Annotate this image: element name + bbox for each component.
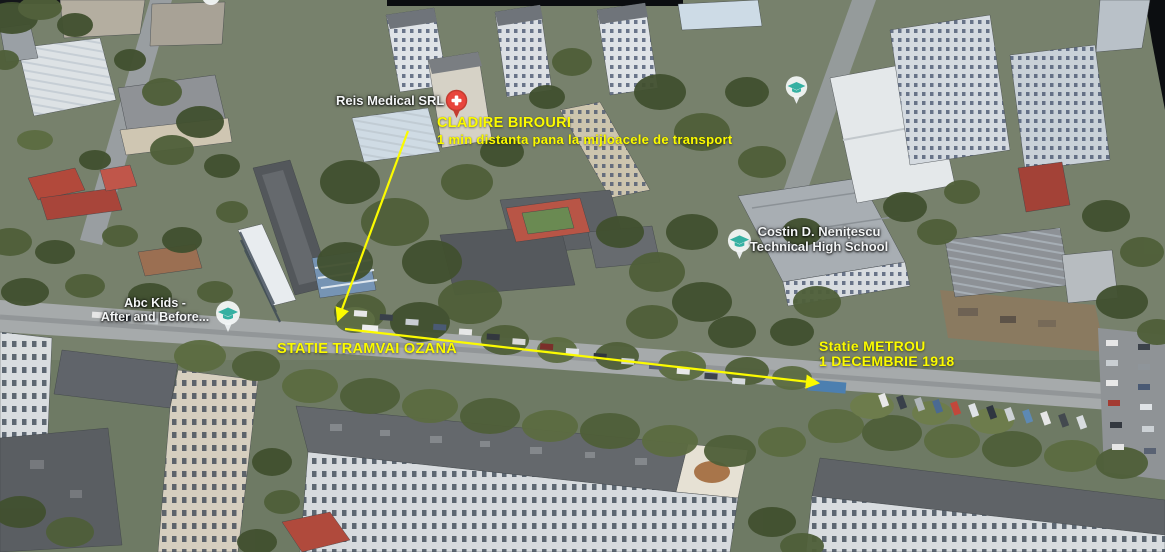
annotation-office: CLADIRE BIROURI 1 min distanta pana la m… xyxy=(437,115,733,147)
poi-label-high-school-line1: Costin D. Nenițescu xyxy=(748,225,890,240)
school-pin-icon-unlabeled[interactable] xyxy=(784,75,809,111)
poi-label-high-school-line2: Technical High School xyxy=(748,240,890,255)
annotation-metro-line2: 1 DECEMBRIE 1918 xyxy=(819,354,955,369)
poi-label-reis-medical[interactable]: Reis Medical SRL xyxy=(336,93,444,108)
poi-label-abc-kids-line2: After and Before... xyxy=(90,311,220,325)
poi-label-abc-kids-line1: Abc Kids - xyxy=(90,297,220,311)
poi-label-abc-kids[interactable]: Abc Kids - After and Before... xyxy=(90,297,220,325)
aerial-view: Reis Medical SRL Abc Kids - After and Be… xyxy=(0,0,1165,552)
aerial-photo xyxy=(0,0,1165,552)
annotation-office-title: CLADIRE BIROURI xyxy=(437,115,733,132)
map-pin-icon-partial[interactable] xyxy=(201,0,221,13)
annotation-office-subtitle: 1 min distanta pana la mijloacele de tra… xyxy=(437,132,733,147)
annotation-tram-stop: STATIE TRAMVAI OZANA xyxy=(277,341,457,357)
poi-label-high-school[interactable]: Costin D. Nenițescu Technical High Schoo… xyxy=(748,225,890,255)
annotation-metro-line1: Statie METROU xyxy=(819,339,955,354)
annotation-metro-stop: Statie METROU 1 DECEMBRIE 1918 xyxy=(819,339,955,369)
